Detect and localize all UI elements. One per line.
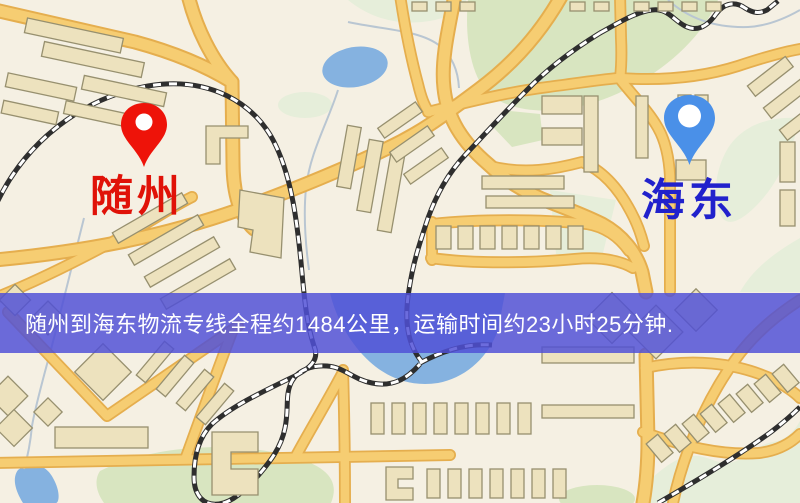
- origin-pin-hole: [136, 114, 153, 131]
- destination-pin-hole: [678, 105, 701, 128]
- map-screenshot: 随州 海东 随州到海东物流专线全程约1484公里，运输时间约23小时25分钟.: [0, 0, 800, 503]
- route-info-banner: 随州到海东物流专线全程约1484公里，运输时间约23小时25分钟.: [0, 293, 800, 353]
- origin-pin-icon: [119, 101, 169, 169]
- map-canvas: [0, 0, 800, 503]
- route-info-text: 随州到海东物流专线全程约1484公里，运输时间约23小时25分钟.: [0, 307, 674, 339]
- origin-pin-body: [121, 103, 167, 167]
- destination-pin-icon: [662, 93, 717, 167]
- destination-label: 海东: [641, 179, 737, 223]
- origin-label: 随州: [90, 176, 184, 219]
